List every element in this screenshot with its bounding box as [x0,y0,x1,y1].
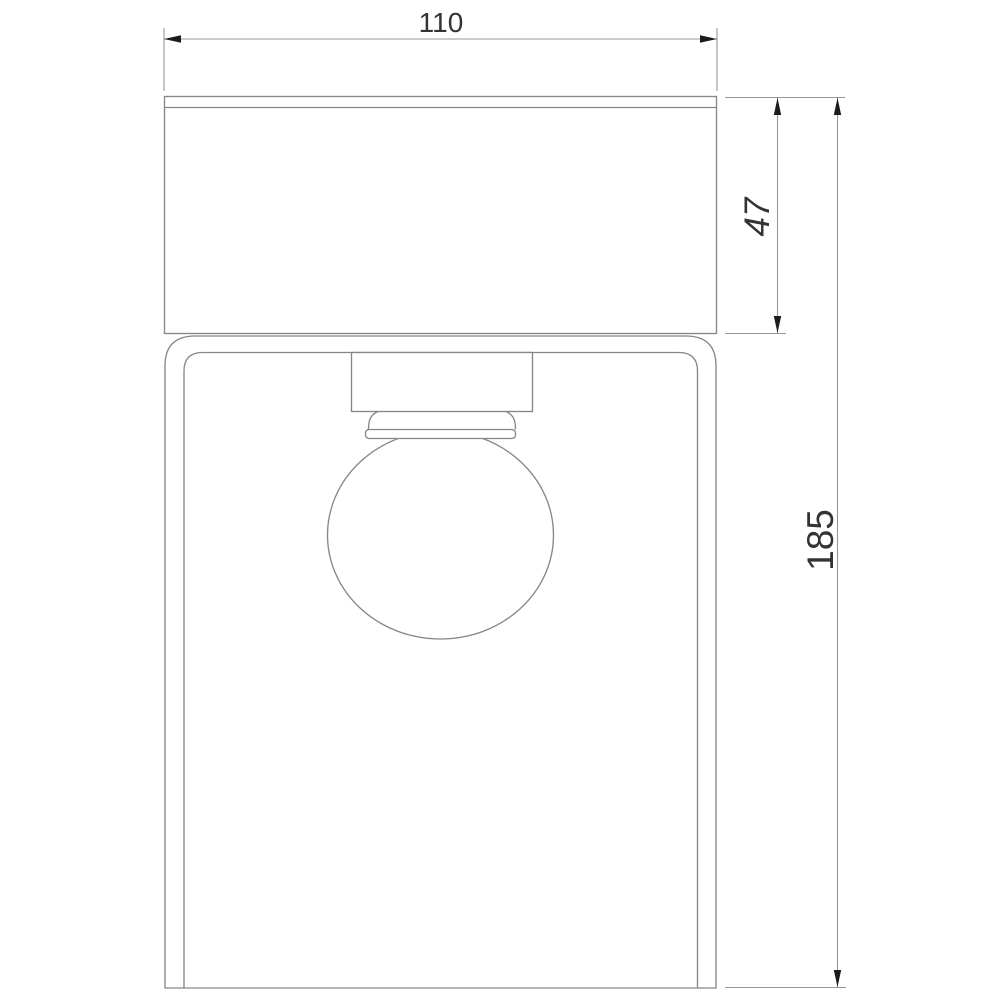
dimension-width: 110 [164,7,717,91]
canopy-box [165,97,717,334]
arrowhead-down-icon [834,970,841,987]
technical-drawing: 110 47 185 [0,0,1000,1000]
fixture-geometry [165,97,717,989]
bulb-globe [328,431,554,639]
arrowhead-left-icon [164,35,181,42]
dimension-canopy-height-label: 47 [738,196,777,236]
dimension-total-height-label: 185 [800,509,841,571]
bulb-collar-ring [366,430,516,439]
arrowhead-up-icon [774,98,781,115]
lamp-socket [352,353,533,412]
arrowhead-down-icon [774,316,781,333]
arrowhead-up-icon [834,98,841,115]
drawing-canvas: 110 47 185 [0,0,1000,1000]
dimension-width-label: 110 [419,7,464,38]
dimension-canopy-height: 47 [725,98,845,334]
arrowhead-right-icon [700,35,717,42]
